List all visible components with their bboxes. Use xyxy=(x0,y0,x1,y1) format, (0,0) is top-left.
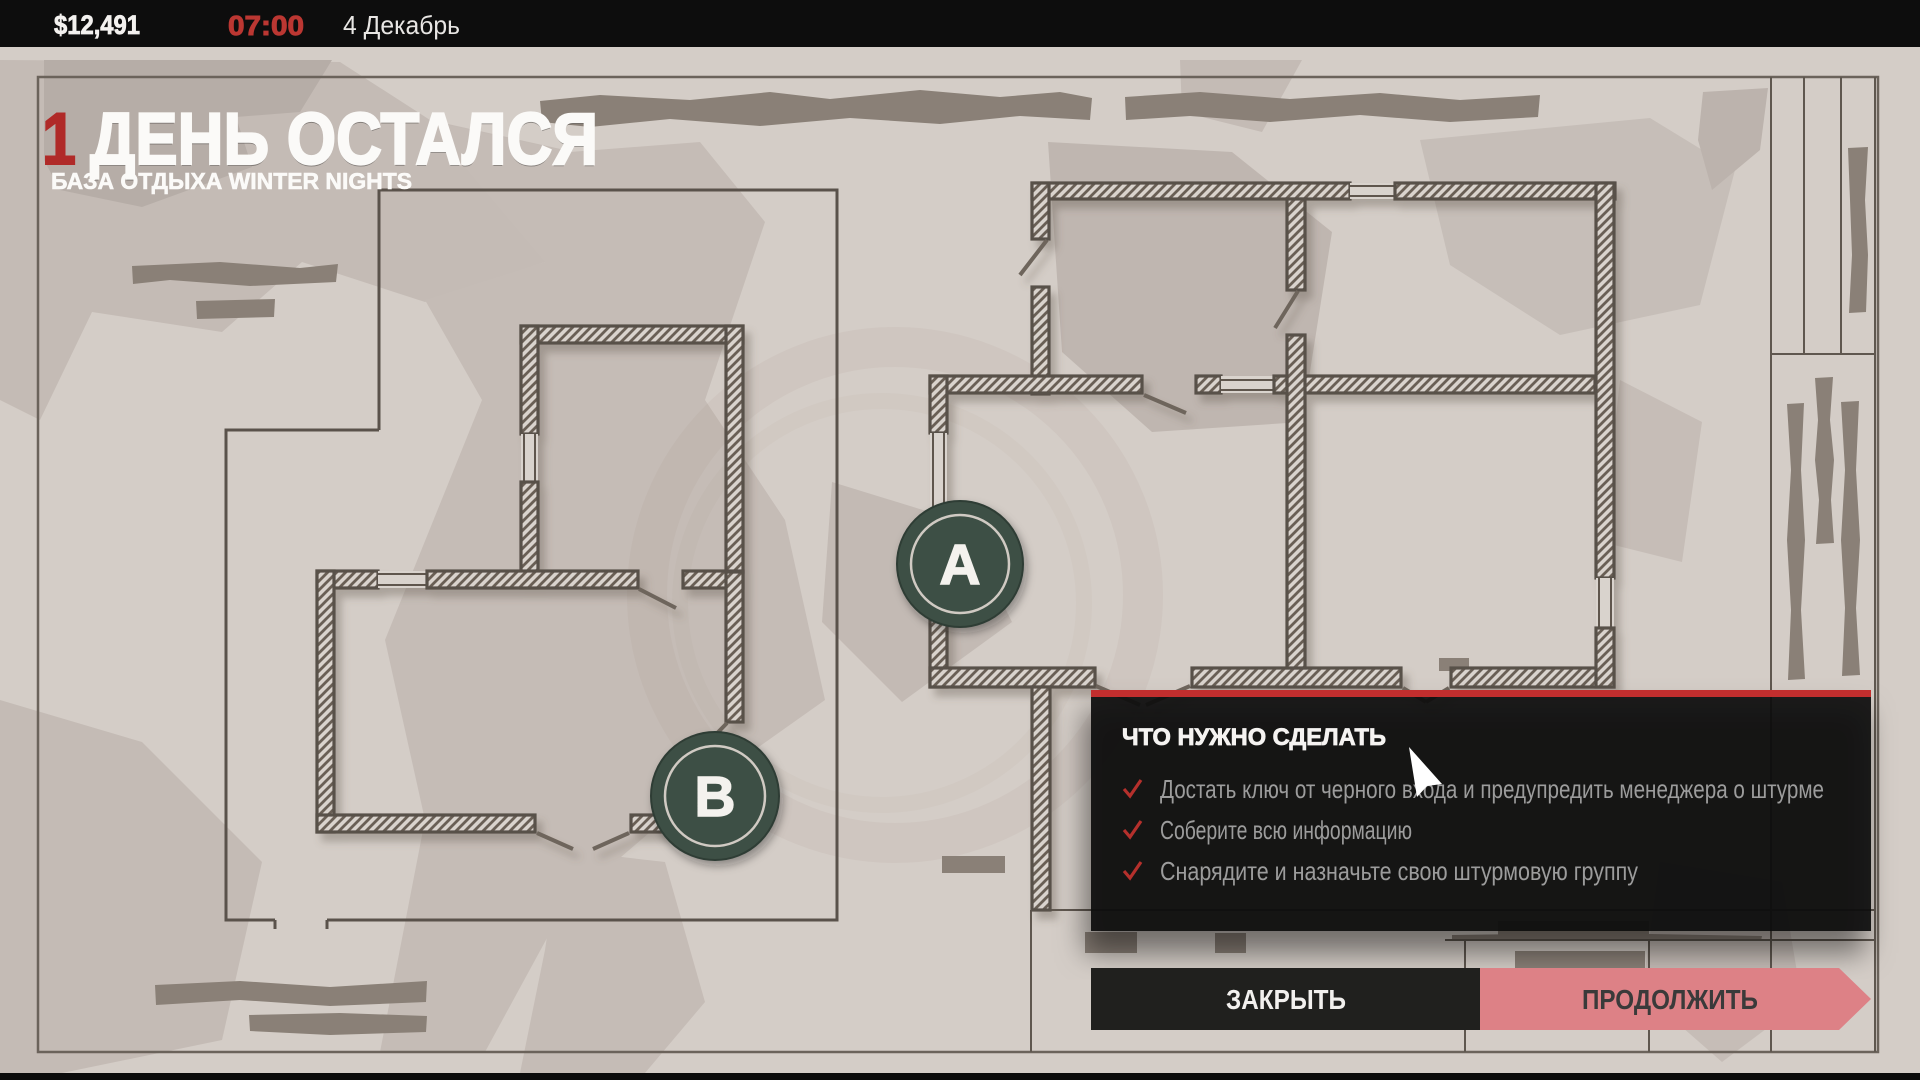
svg-text:A: A xyxy=(939,533,980,597)
svg-text:Соберите всю информацию: Соберите всю информацию xyxy=(1160,815,1412,845)
svg-text:ПРОДОЛЖИТЬ: ПРОДОЛЖИТЬ xyxy=(1582,984,1758,1015)
svg-text:B: B xyxy=(694,765,735,829)
svg-text:Достать ключ от черного входа: Достать ключ от черного входа и предупре… xyxy=(1160,774,1824,804)
svg-text:ЗАКРЫТЬ: ЗАКРЫТЬ xyxy=(1226,984,1346,1015)
svg-text:$12,491: $12,491 xyxy=(54,10,140,40)
svg-text:ЧТО НУЖНО СДЕЛАТЬ: ЧТО НУЖНО СДЕЛАТЬ xyxy=(1122,724,1386,751)
svg-text:БАЗА ОТДЫХА WINTER NIGHTS: БАЗА ОТДЫХА WINTER NIGHTS xyxy=(51,168,412,194)
svg-text:4 Декабрь: 4 Декабрь xyxy=(343,10,460,40)
svg-text:Снарядите и назначьте свою шту: Снарядите и назначьте свою штурмовую гру… xyxy=(1160,856,1638,886)
svg-text:07:00: 07:00 xyxy=(228,10,304,41)
